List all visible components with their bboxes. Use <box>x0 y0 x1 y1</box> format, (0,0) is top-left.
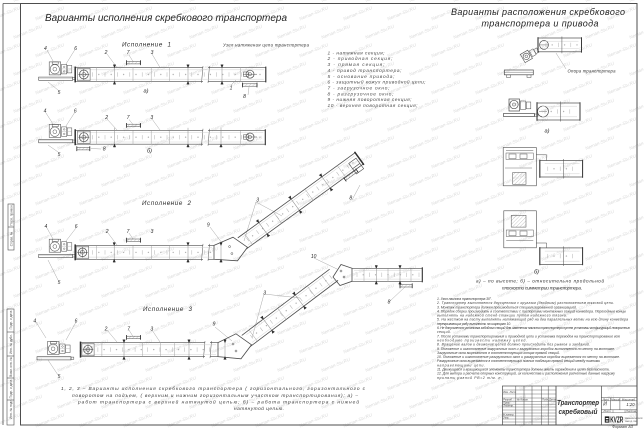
svg-text:4: 4 <box>44 46 47 52</box>
svg-text:6: 6 <box>75 224 78 230</box>
svg-text:Масса: Масса <box>611 397 620 401</box>
svg-text:Масштаб: Масштаб <box>622 397 635 401</box>
svg-text:8: 8 <box>388 300 391 306</box>
svg-text:9: 9 <box>213 322 216 328</box>
svg-text:3: 3 <box>150 327 153 333</box>
svg-text:1:20: 1:20 <box>626 402 635 407</box>
svg-text:3: 3 <box>150 115 153 121</box>
svg-text:2 - приводная секция;: 2 - приводная секция; <box>327 56 394 62</box>
svg-text:KVZR: KVZR <box>610 416 623 425</box>
svg-text:Исполнение 2: Исполнение 2 <box>142 200 192 207</box>
svg-text:7: 7 <box>127 327 130 333</box>
svg-text:Изм. Лист: Изм. Лист <box>503 390 517 394</box>
svg-text:КАМЫШИНСКИЙ: КАМЫШИНСКИЙ <box>625 417 643 420</box>
svg-text:4: 4 <box>44 109 47 115</box>
svg-text:4: 4 <box>33 319 36 325</box>
svg-text:3: 3 <box>263 291 266 297</box>
svg-text:6: 6 <box>74 109 77 115</box>
svg-text:а): а) <box>545 129 550 135</box>
svg-text:Инв. № подл.: Инв. № подл. <box>9 399 13 419</box>
svg-text:Взам. инв. №: Взам. инв. № <box>9 357 13 377</box>
svg-text:10 - верхняя поворотная секци: 10 - верхняя поворотная секция; <box>328 103 419 109</box>
svg-text:7: 7 <box>127 115 130 121</box>
svg-text:9 - нижняя поворотная секция: 9 - нижняя поворотная секция; <box>328 97 413 103</box>
svg-text:Лист: Лист <box>602 409 611 413</box>
svg-text:4: 4 <box>45 224 48 230</box>
svg-text:6: 6 <box>75 319 78 325</box>
svg-text:ЗАВОД СМИ: ЗАВОД СМИ <box>625 420 638 423</box>
svg-text:Дата: Дата <box>548 398 556 402</box>
svg-text:Опора транспортера: Опора транспортера <box>568 69 617 74</box>
svg-text:Подп. и дата: Подп. и дата <box>9 379 13 398</box>
svg-text:Исполнение 1: Исполнение 1 <box>122 42 171 49</box>
svg-text:Листов: Листов <box>625 409 637 413</box>
svg-text:а) – по высоте; б) – относит: а) – по высоте; б) – относительно продол… <box>476 278 604 284</box>
svg-text:5: 5 <box>58 280 61 286</box>
svg-text:5: 5 <box>58 90 61 96</box>
svg-text:6. Не допускается установка за: 6. Не допускается установка забойных сек… <box>437 326 630 330</box>
svg-text:8: 8 <box>243 94 246 100</box>
svg-text:Подп. и дата: Подп. и дата <box>9 310 13 329</box>
svg-text:№ докум.: № докум. <box>517 398 529 402</box>
svg-text:2: 2 <box>104 115 108 121</box>
svg-text:б): б) <box>534 270 539 276</box>
svg-text:Узел натяжения цепи транспорте: Узел натяжения цепи транспортера <box>223 43 310 48</box>
svg-text:Варианты расположения скребков: Варианты расположения скребкового <box>451 7 625 17</box>
svg-text:скребковый: скребковый <box>559 407 598 416</box>
svg-text:5: 5 <box>58 152 61 158</box>
svg-text:б): б) <box>147 149 152 155</box>
svg-text:10: 10 <box>311 254 317 260</box>
svg-text:2: 2 <box>105 229 109 235</box>
svg-text:1: 1 <box>230 86 233 92</box>
svg-text:2: 2 <box>104 50 108 56</box>
svg-text:Утв.: Утв. <box>503 415 509 419</box>
svg-text:натянутой цепью.: натянутой цепью. <box>234 405 284 412</box>
svg-text:3 - прямая секция;: 3 - прямая секция; <box>328 62 386 68</box>
svg-text:Инв. № дубл.: Инв. № дубл. <box>9 334 13 354</box>
svg-text:6: 6 <box>74 46 77 52</box>
svg-text:работ транспортера с верхней н: работ транспортера с верхней натянутой ц… <box>77 399 359 406</box>
svg-text:8 - разгрузочное окно;: 8 - разгрузочное окно; <box>328 91 395 97</box>
svg-text:3: 3 <box>256 198 259 204</box>
svg-text:а): а) <box>144 89 149 95</box>
svg-text:Формат А3: Формат А3 <box>612 425 634 429</box>
svg-text:Перв. примен.: Перв. примен. <box>9 204 13 225</box>
svg-text:2: 2 <box>104 327 108 333</box>
svg-text:8: 8 <box>349 196 352 202</box>
svg-text:Исполнение 3: Исполнение 3 <box>143 306 193 313</box>
svg-text:8: 8 <box>103 147 106 153</box>
svg-text:Транспортер: Транспортер <box>557 398 599 407</box>
svg-text:принять равной РВ=2 т/м. п.: принять равной РВ=2 т/м. п. <box>437 376 502 380</box>
svg-text:4 - привод транспортера;: 4 - привод транспортера; <box>328 68 403 74</box>
svg-text:И: И <box>603 402 607 408</box>
svg-text:7: 7 <box>127 229 130 235</box>
svg-text:7: 7 <box>127 50 130 56</box>
svg-text:поворотом на подъем, ( верхни: поворотом на подъем, ( верхним и нижним … <box>72 393 358 399</box>
svg-text:плоскости симметрии транспорте: плоскости симметрии транспортера. <box>502 286 582 291</box>
svg-text:7 - загрузочное окно;: 7 - загрузочное окно; <box>328 86 391 92</box>
svg-text:транспортера и привода: транспортера и привода <box>482 19 599 29</box>
svg-text:Справ. №: Справ. № <box>9 231 13 246</box>
svg-text:Варианты исполнения скребковог: Варианты исполнения скребкового транспор… <box>45 12 287 24</box>
svg-text:3: 3 <box>151 229 154 235</box>
svg-text:5 - основание привода;: 5 - основание привода; <box>328 74 396 80</box>
svg-text:1, 2, 3 – Варианты исполнени: 1, 2, 3 – Варианты исполнения скребковог… <box>61 386 366 392</box>
svg-text:6 - защитный кожух приводной: 6 - защитный кожух приводной цепи; <box>328 79 427 86</box>
svg-text:Т.контр.: Т.контр. <box>503 403 514 407</box>
svg-text:1 - натяжная секция;: 1 - натяжная секция; <box>328 50 386 56</box>
svg-text:3: 3 <box>151 50 154 56</box>
svg-text:9: 9 <box>207 223 210 229</box>
svg-text:5: 5 <box>58 374 61 380</box>
